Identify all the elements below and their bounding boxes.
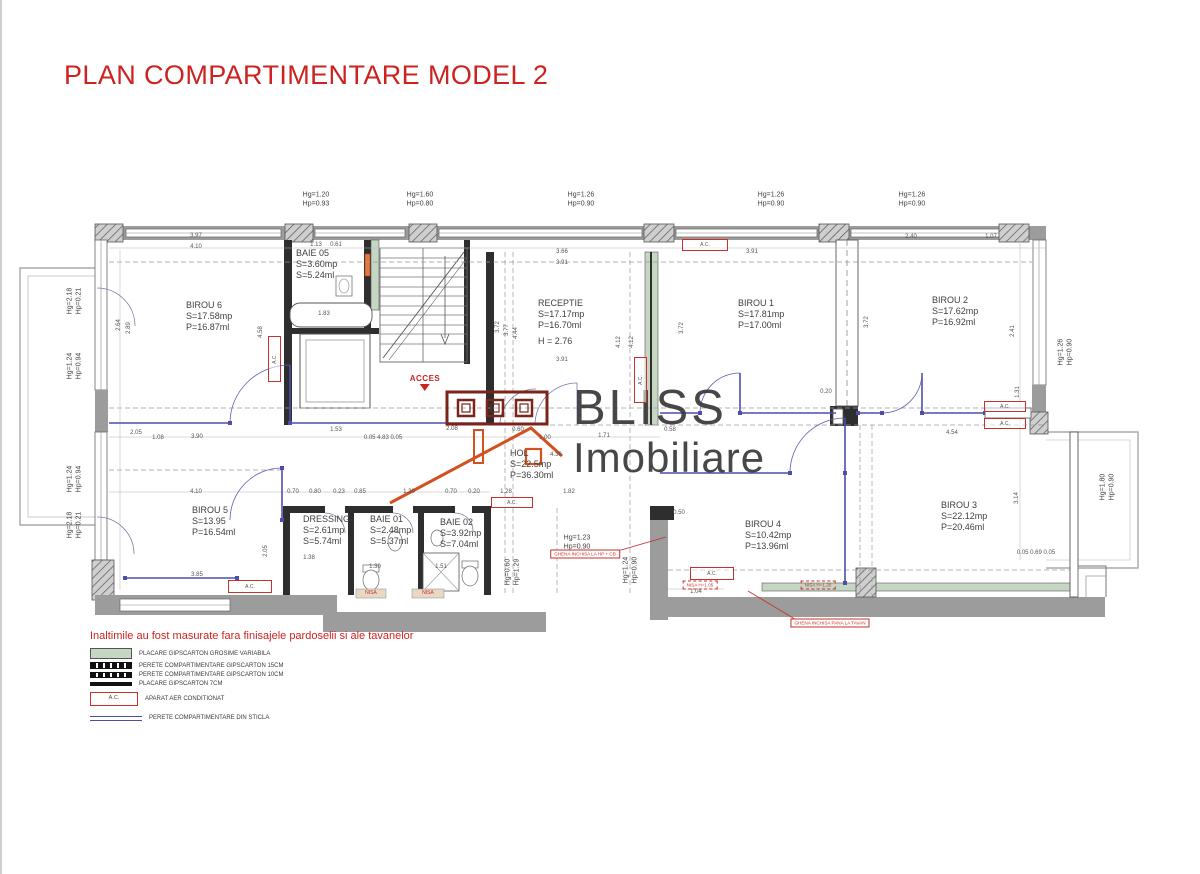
dimension-label: 0.60: [512, 427, 524, 433]
dimension-label: 0.20: [820, 389, 832, 395]
dimension-label: 1.08: [152, 435, 164, 441]
hg-line: Hg=1.26: [758, 192, 785, 201]
dimension-label: 4.44: [513, 327, 519, 339]
dimension-label: 2.05: [130, 430, 142, 436]
hp-line: Hp=0.90: [631, 557, 640, 584]
dimension-label: 2.08: [446, 426, 458, 432]
hp-line: Hp=0.90: [1108, 474, 1117, 501]
hg-line: Hg=1.26: [899, 192, 926, 201]
ac-unit-text: A.C.: [507, 500, 517, 506]
dimension-label: 3.72: [679, 322, 685, 334]
dimension-label: 0.70: [287, 489, 299, 495]
dimension-label: 1.51: [435, 564, 447, 570]
hp-line: Hp=0.94: [75, 466, 84, 493]
dimension-label: 1.83: [318, 311, 330, 317]
dimension-label: 4.58: [258, 326, 264, 338]
hg-line: Hg=1.60: [407, 192, 434, 201]
dimension-label: 3.66: [556, 249, 568, 255]
legend-swatch-glass: [90, 716, 142, 721]
room-metric: P=17.00ml: [738, 320, 784, 331]
legend-row: PERETE COMPARTIMENTARE GIPSCARTON 10CM: [90, 672, 283, 678]
legend-label: PERETE COMPARTIMENTARE GIPSCARTON 15CM: [139, 663, 283, 669]
legend-row: PLACARE GIPSCARTON GROSIME VARIABILA: [90, 648, 283, 659]
dimension-label: 0.50: [673, 510, 685, 516]
room-metric: S=10.42mp: [745, 530, 791, 541]
dimension-label: 3.91: [556, 260, 568, 266]
ac-unit-text: A.C.: [245, 584, 255, 590]
legend-swatch-green: [90, 648, 132, 659]
room-metric: P=16.92ml: [932, 317, 978, 328]
dimension-label: 2.40: [905, 234, 917, 240]
room-label: BAIE 02S=3.92mpS=7.04ml: [440, 517, 481, 550]
legend-row: PERETE COMPARTIMENTARE GIPSCARTON 15CM: [90, 662, 283, 669]
dimension-label: 0.85: [354, 489, 366, 495]
room-metric: S=5.24ml: [296, 270, 337, 281]
hp-line: Hp=0.90: [899, 200, 926, 209]
dimension-label: 0.20: [468, 489, 480, 495]
ac-unit-text: A.C.: [637, 375, 643, 385]
room-metric: S=13.95: [192, 516, 235, 527]
dimension-label: 1.04: [690, 589, 702, 595]
dimension-label: 2.41: [1010, 325, 1016, 337]
height-label: Hg=2.18Hp=0.21: [67, 512, 84, 539]
room-metric: S=17.17mp: [538, 309, 584, 320]
legend-label: PERETE COMPARTIMENTARE DIN STICLA: [149, 715, 269, 721]
hp-line: Hp=1.29: [513, 559, 522, 586]
room-name: BAIE 05: [296, 248, 337, 259]
legend: PLACARE GIPSCARTON GROSIME VARIABILAPERE…: [90, 648, 283, 724]
height-label: Hg=2.18Hp=0.21: [67, 288, 84, 315]
hp-line: Hp=0.90: [1066, 339, 1075, 366]
hg-line: Hg=2.18: [67, 288, 76, 315]
dimension-label: 1.38: [303, 555, 315, 561]
room-metric: P=16.70ml: [538, 320, 584, 331]
dimension-label: 3.97: [190, 233, 202, 239]
dimension-label: 4.10: [190, 489, 202, 495]
room-name: BIROU 3: [941, 500, 987, 511]
dimension-label: 0.70: [445, 489, 457, 495]
hg-line: Hg=1.26: [568, 192, 595, 201]
ac-unit-box: A.C.: [491, 497, 533, 508]
dimension-label: 1.82: [563, 489, 575, 495]
room-label: BAIE 01S=2.48mpS=5.37ml: [370, 514, 411, 547]
ac-unit-box: A.C.: [268, 336, 281, 382]
room-metric: S=5.37ml: [370, 536, 411, 547]
dimension-label: 2.64: [116, 319, 122, 331]
room-name: BAIE 01: [370, 514, 411, 525]
room-label: BIROU 6S=17.58mpP=16.87ml: [186, 300, 232, 333]
room-metric: P=36.30ml: [510, 470, 553, 481]
dimension-label: 1.30: [369, 564, 381, 570]
room-metric: S=2.61mp: [303, 525, 350, 536]
dimension-label: 0.61: [330, 242, 342, 248]
legend-swatch-w10: [90, 672, 132, 678]
dimension-label: 1.13: [310, 242, 322, 248]
hg-line: Hg=1.80: [1100, 474, 1109, 501]
ac-unit-box: A.C.: [682, 239, 728, 251]
red-note: GHENA INCHISA PANA LA TAVAN: [790, 619, 869, 628]
room-name: HOL: [510, 448, 553, 459]
dimension-label: 3.91: [556, 357, 568, 363]
dimension-label: 3.72: [864, 316, 870, 328]
hp-line: Hp=0.94: [75, 353, 84, 380]
dimension-label: 4.36: [550, 452, 562, 458]
legend-swatch-ac: A.C.: [90, 692, 138, 706]
hg-line: Hg=1.23: [564, 535, 591, 544]
hp-line: Hp=0.93: [303, 200, 330, 209]
room-metric: S=3.60mp: [296, 259, 337, 270]
red-note: NISA: [419, 589, 437, 597]
room-metric: S=17.81mp: [738, 309, 784, 320]
ac-unit-text: A.C.: [271, 354, 277, 364]
room-name: DRESSING: [303, 514, 350, 525]
ac-unit-box: A.C.: [984, 401, 1026, 412]
ac-unit-box: A.C.: [634, 357, 647, 403]
room-name: BIROU 6: [186, 300, 232, 311]
room-label: BIROU 2S=17.62mpP=16.92ml: [932, 295, 978, 328]
room-name: BIROU 5: [192, 505, 235, 516]
dimension-label: 4.54: [946, 430, 958, 436]
room-metric: P=16.54ml: [192, 527, 235, 538]
legend-label: PLACARE GIPSCARTON 7CM: [139, 681, 222, 687]
dimension-label: 3.72: [495, 321, 501, 333]
ac-unit-text: A.C.: [1000, 404, 1010, 410]
hg-line: Hg=1.26: [1058, 339, 1067, 366]
room-metric: S=3.92mp: [440, 528, 481, 539]
dimension-label: 1.30: [403, 489, 415, 495]
legend-swatch-w7: [90, 682, 132, 686]
height-label: Hg=1.60Hp=0.80: [407, 192, 434, 209]
height-label: Hg=1.24Hp=0.94: [67, 353, 84, 380]
room-label: BIROU 5S=13.95P=16.54ml: [192, 505, 235, 538]
height-label: Hg=0.60Hp=1.29: [505, 559, 522, 586]
dimension-label: 4.12: [629, 336, 635, 348]
dimension-label: 3.14: [1014, 492, 1020, 504]
dimension-label: 0.80: [309, 489, 321, 495]
room-metric: S=17.58mp: [186, 311, 232, 322]
legend-label: PLACARE GIPSCARTON GROSIME VARIABILA: [139, 651, 270, 657]
hp-line: Hp=0.80: [407, 200, 434, 209]
room-name: BAIE 02: [440, 517, 481, 528]
hg-line: Hg=1.24: [67, 353, 76, 380]
dimension-label: 1.53: [330, 427, 342, 433]
height-label: Hg=1.24Hp=0.90: [623, 557, 640, 584]
dimension-label: 1.00: [539, 435, 551, 441]
legend-row: A.C.APARAT AER CONDITIONAT: [90, 692, 283, 706]
ac-unit-text: A.C.: [1000, 421, 1010, 427]
room-label: BIROU 3S=22.12mpP=20.46ml: [941, 500, 987, 533]
dimension-label: 1.31: [1015, 386, 1021, 398]
red-note: NISA H=1.05: [683, 581, 718, 590]
hp-line: Hp=0.90: [758, 200, 785, 209]
dimension-label: 1.28: [500, 489, 512, 495]
room-label: DRESSINGS=2.61mpS=5.74ml: [303, 514, 350, 547]
ac-unit-text: A.C.: [707, 571, 717, 577]
dimension-label: 0.23: [333, 489, 345, 495]
hg-line: Hg=1.24: [623, 557, 632, 584]
red-note: NISA H=1.20: [801, 581, 836, 590]
room-metric: S=7.04ml: [440, 539, 481, 550]
dimension-label: 4.10: [190, 244, 202, 250]
height-label: Hg=1.26Hp=0.90: [758, 192, 785, 209]
ac-unit-box: A.C.: [984, 418, 1026, 429]
dimension-label: 3.91: [746, 249, 758, 255]
height-label: Hg=1.26Hp=0.90: [899, 192, 926, 209]
room-label: BIROU 1S=17.81mpP=17.00ml: [738, 298, 784, 331]
dimension-label: 2.89: [126, 322, 132, 334]
room-metric: P=20.46ml: [941, 522, 987, 533]
dimension-label: 0.58: [664, 427, 676, 433]
dimension-label: 4.12: [616, 336, 622, 348]
dimension-label: 0.05 4.83 0.05: [364, 435, 402, 441]
hg-line: Hg=2.18: [67, 512, 76, 539]
hp-line: Hp=0.21: [75, 512, 84, 539]
height-label: Hg=1.20Hp=0.93: [303, 192, 330, 209]
labels-layer: BIROU 6S=17.58mpP=16.87mlBAIE 05S=3.60mp…: [0, 0, 1200, 874]
dimension-label: 3.85: [191, 572, 203, 578]
room-name: BIROU 2: [932, 295, 978, 306]
room-metric: S=22.5mp: [510, 459, 553, 470]
dimension-label: 2.05: [263, 545, 269, 557]
hg-line: Hg=0.60: [505, 559, 514, 586]
room-name: RECEPTIE: [538, 298, 584, 309]
dimension-label: 1.07: [985, 234, 997, 240]
dimension-label: 3.77: [504, 324, 510, 336]
room-metric: P=16.87ml: [186, 322, 232, 333]
room-name: BIROU 4: [745, 519, 791, 530]
room-name: BIROU 1: [738, 298, 784, 309]
dimension-label: 1.71: [598, 433, 610, 439]
legend-row: PLACARE GIPSCARTON 7CM: [90, 681, 283, 687]
room-label: BAIE 05S=3.60mpS=5.24ml: [296, 248, 337, 281]
ac-unit-box: A.C.: [228, 580, 272, 593]
legend-label: APARAT AER CONDITIONAT: [145, 696, 224, 702]
legend-swatch-w15: [90, 662, 132, 669]
floor-plan-sheet: PLAN COMPARTIMENTARE MODEL 2: [0, 0, 1200, 874]
room-metric: S=5.74ml: [303, 536, 350, 547]
room-metric: S=17.62mp: [932, 306, 978, 317]
height-label: Hg=1.80Hp=0.90: [1100, 474, 1117, 501]
ac-unit-box: A.C.: [690, 567, 734, 580]
room-metric: P=13.96ml: [745, 541, 791, 552]
red-note: NISA: [362, 589, 380, 597]
room-metric: H = 2.76: [538, 336, 584, 347]
legend-rows: PLACARE GIPSCARTON GROSIME VARIABILAPERE…: [90, 648, 283, 721]
dimension-label: 0.05 0.69 0.05: [1017, 550, 1055, 556]
room-label: RECEPTIES=17.17mpP=16.70mlH = 2.76: [538, 298, 584, 347]
height-label: Hg=1.24Hp=0.94: [67, 466, 84, 493]
legend-label: PERETE COMPARTIMENTARE GIPSCARTON 10CM: [139, 672, 283, 678]
heights-note: Inaltimile au fost masurate fara finisaj…: [90, 630, 413, 642]
red-note: GHENA INCHISA LA HP + CB: [550, 550, 620, 559]
ac-unit-text: A.C.: [700, 242, 710, 248]
dimension-label: 3.90: [191, 434, 203, 440]
height-label: Hg=1.26Hp=0.90: [568, 192, 595, 209]
hg-line: Hg=1.20: [303, 192, 330, 201]
room-label: BIROU 4S=10.42mpP=13.96ml: [745, 519, 791, 552]
room-label: HOLS=22.5mpP=36.30ml: [510, 448, 553, 481]
legend-row: PERETE COMPARTIMENTARE DIN STICLA: [90, 715, 283, 721]
room-metric: S=22.12mp: [941, 511, 987, 522]
height-label: Hg=1.26Hp=0.90: [1058, 339, 1075, 366]
hp-line: Hp=0.21: [75, 288, 84, 315]
hg-line: Hg=1.24: [67, 466, 76, 493]
hp-line: Hp=0.90: [568, 200, 595, 209]
room-metric: S=2.48mp: [370, 525, 411, 536]
